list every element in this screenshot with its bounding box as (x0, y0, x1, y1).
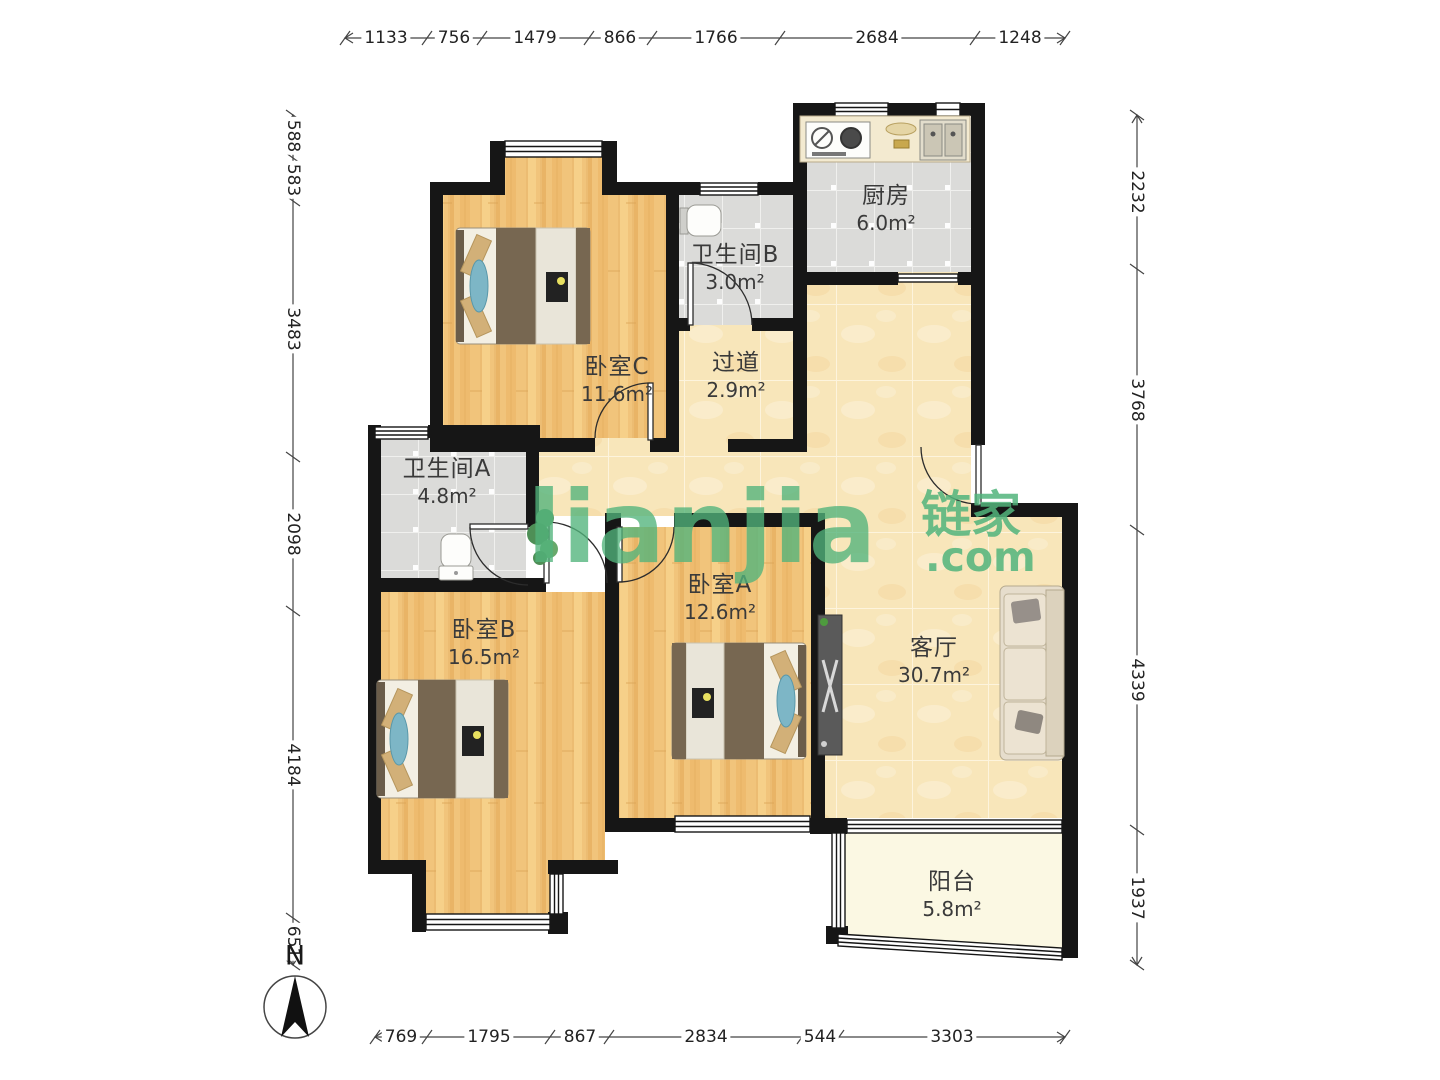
bed-b-bay-window-bottom (426, 914, 550, 930)
balcony-window-left (832, 833, 845, 928)
dim-left-1: 588 (283, 117, 303, 155)
compass (264, 976, 326, 1038)
compass-north-label: N (285, 941, 305, 972)
kitchen-counter (800, 116, 970, 162)
dim-bottom-3: 867 (561, 1027, 599, 1047)
room-label-bed-b: 卧室B 16.5m² (448, 616, 520, 670)
bed-c-window (505, 141, 602, 157)
bed-b-bay-window-right (550, 874, 563, 914)
dim-bottom-1: 769 (382, 1027, 420, 1047)
dim-top-2: 756 (435, 28, 473, 48)
bed-a-window (675, 816, 810, 832)
bed-c (456, 228, 590, 344)
dim-right-1: 2232 (1127, 167, 1147, 216)
room-label-bed-c: 卧室C 11.6m² (581, 353, 653, 407)
dim-right-2: 3768 (1127, 375, 1147, 424)
living-floor-link (807, 445, 825, 515)
kitchen-window-left (835, 103, 888, 116)
dim-right-3: 4339 (1127, 655, 1147, 704)
dim-top-5: 1766 (691, 28, 740, 48)
dim-bottom-6: 3303 (927, 1027, 976, 1047)
dim-left-4: 2098 (283, 509, 303, 558)
bath-b-window (700, 183, 758, 195)
dim-top-6: 2684 (852, 28, 901, 48)
north-arrow-icon (281, 976, 309, 1037)
kitchen-window-right (936, 103, 960, 116)
room-label-bed-a: 卧室A 12.6m² (684, 571, 756, 625)
living-floor-upper (807, 272, 971, 512)
small-appliance (886, 123, 916, 135)
dim-bottom-4: 2834 (681, 1027, 730, 1047)
room-label-kitchen: 厨房 6.0m² (856, 182, 915, 236)
floor-plan-canvas (0, 0, 1440, 1080)
balcony-slider-window (847, 820, 1062, 833)
room-label-balcony: 阳台 5.8m² (922, 868, 981, 922)
dim-left-3: 3483 (283, 304, 303, 353)
dim-bottom-5: 544 (801, 1027, 839, 1047)
toilet-bath-b (680, 205, 721, 236)
floor-plan-page: lianjia 链家 .com 卧室C 11.6m² 卫生间B 3.0m² 过道… (0, 0, 1440, 1080)
room-label-bath-a: 卫生间A 4.8m² (403, 455, 492, 509)
dim-top-1: 1133 (361, 28, 410, 48)
dim-left-5: 4184 (283, 740, 303, 789)
toilet-bath-a (439, 534, 473, 580)
sofa (1000, 586, 1064, 760)
tv-console (818, 615, 842, 755)
dim-bottom-2: 1795 (464, 1027, 513, 1047)
dim-right-4: 1937 (1127, 873, 1147, 922)
dim-top-3: 1479 (510, 28, 559, 48)
kitchen-threshold (898, 274, 958, 282)
bath-a-window (375, 427, 428, 439)
dim-top-4: 866 (601, 28, 639, 48)
bed-b (377, 680, 508, 798)
dim-left-2: 583 (283, 161, 303, 199)
room-label-bath-b: 卫生间B 3.0m² (691, 241, 780, 295)
room-label-living: 客厅 30.7m² (898, 634, 970, 688)
room-label-corridor: 过道 2.9m² (706, 349, 765, 403)
bed-a (672, 643, 806, 759)
dim-top-7: 1248 (995, 28, 1044, 48)
